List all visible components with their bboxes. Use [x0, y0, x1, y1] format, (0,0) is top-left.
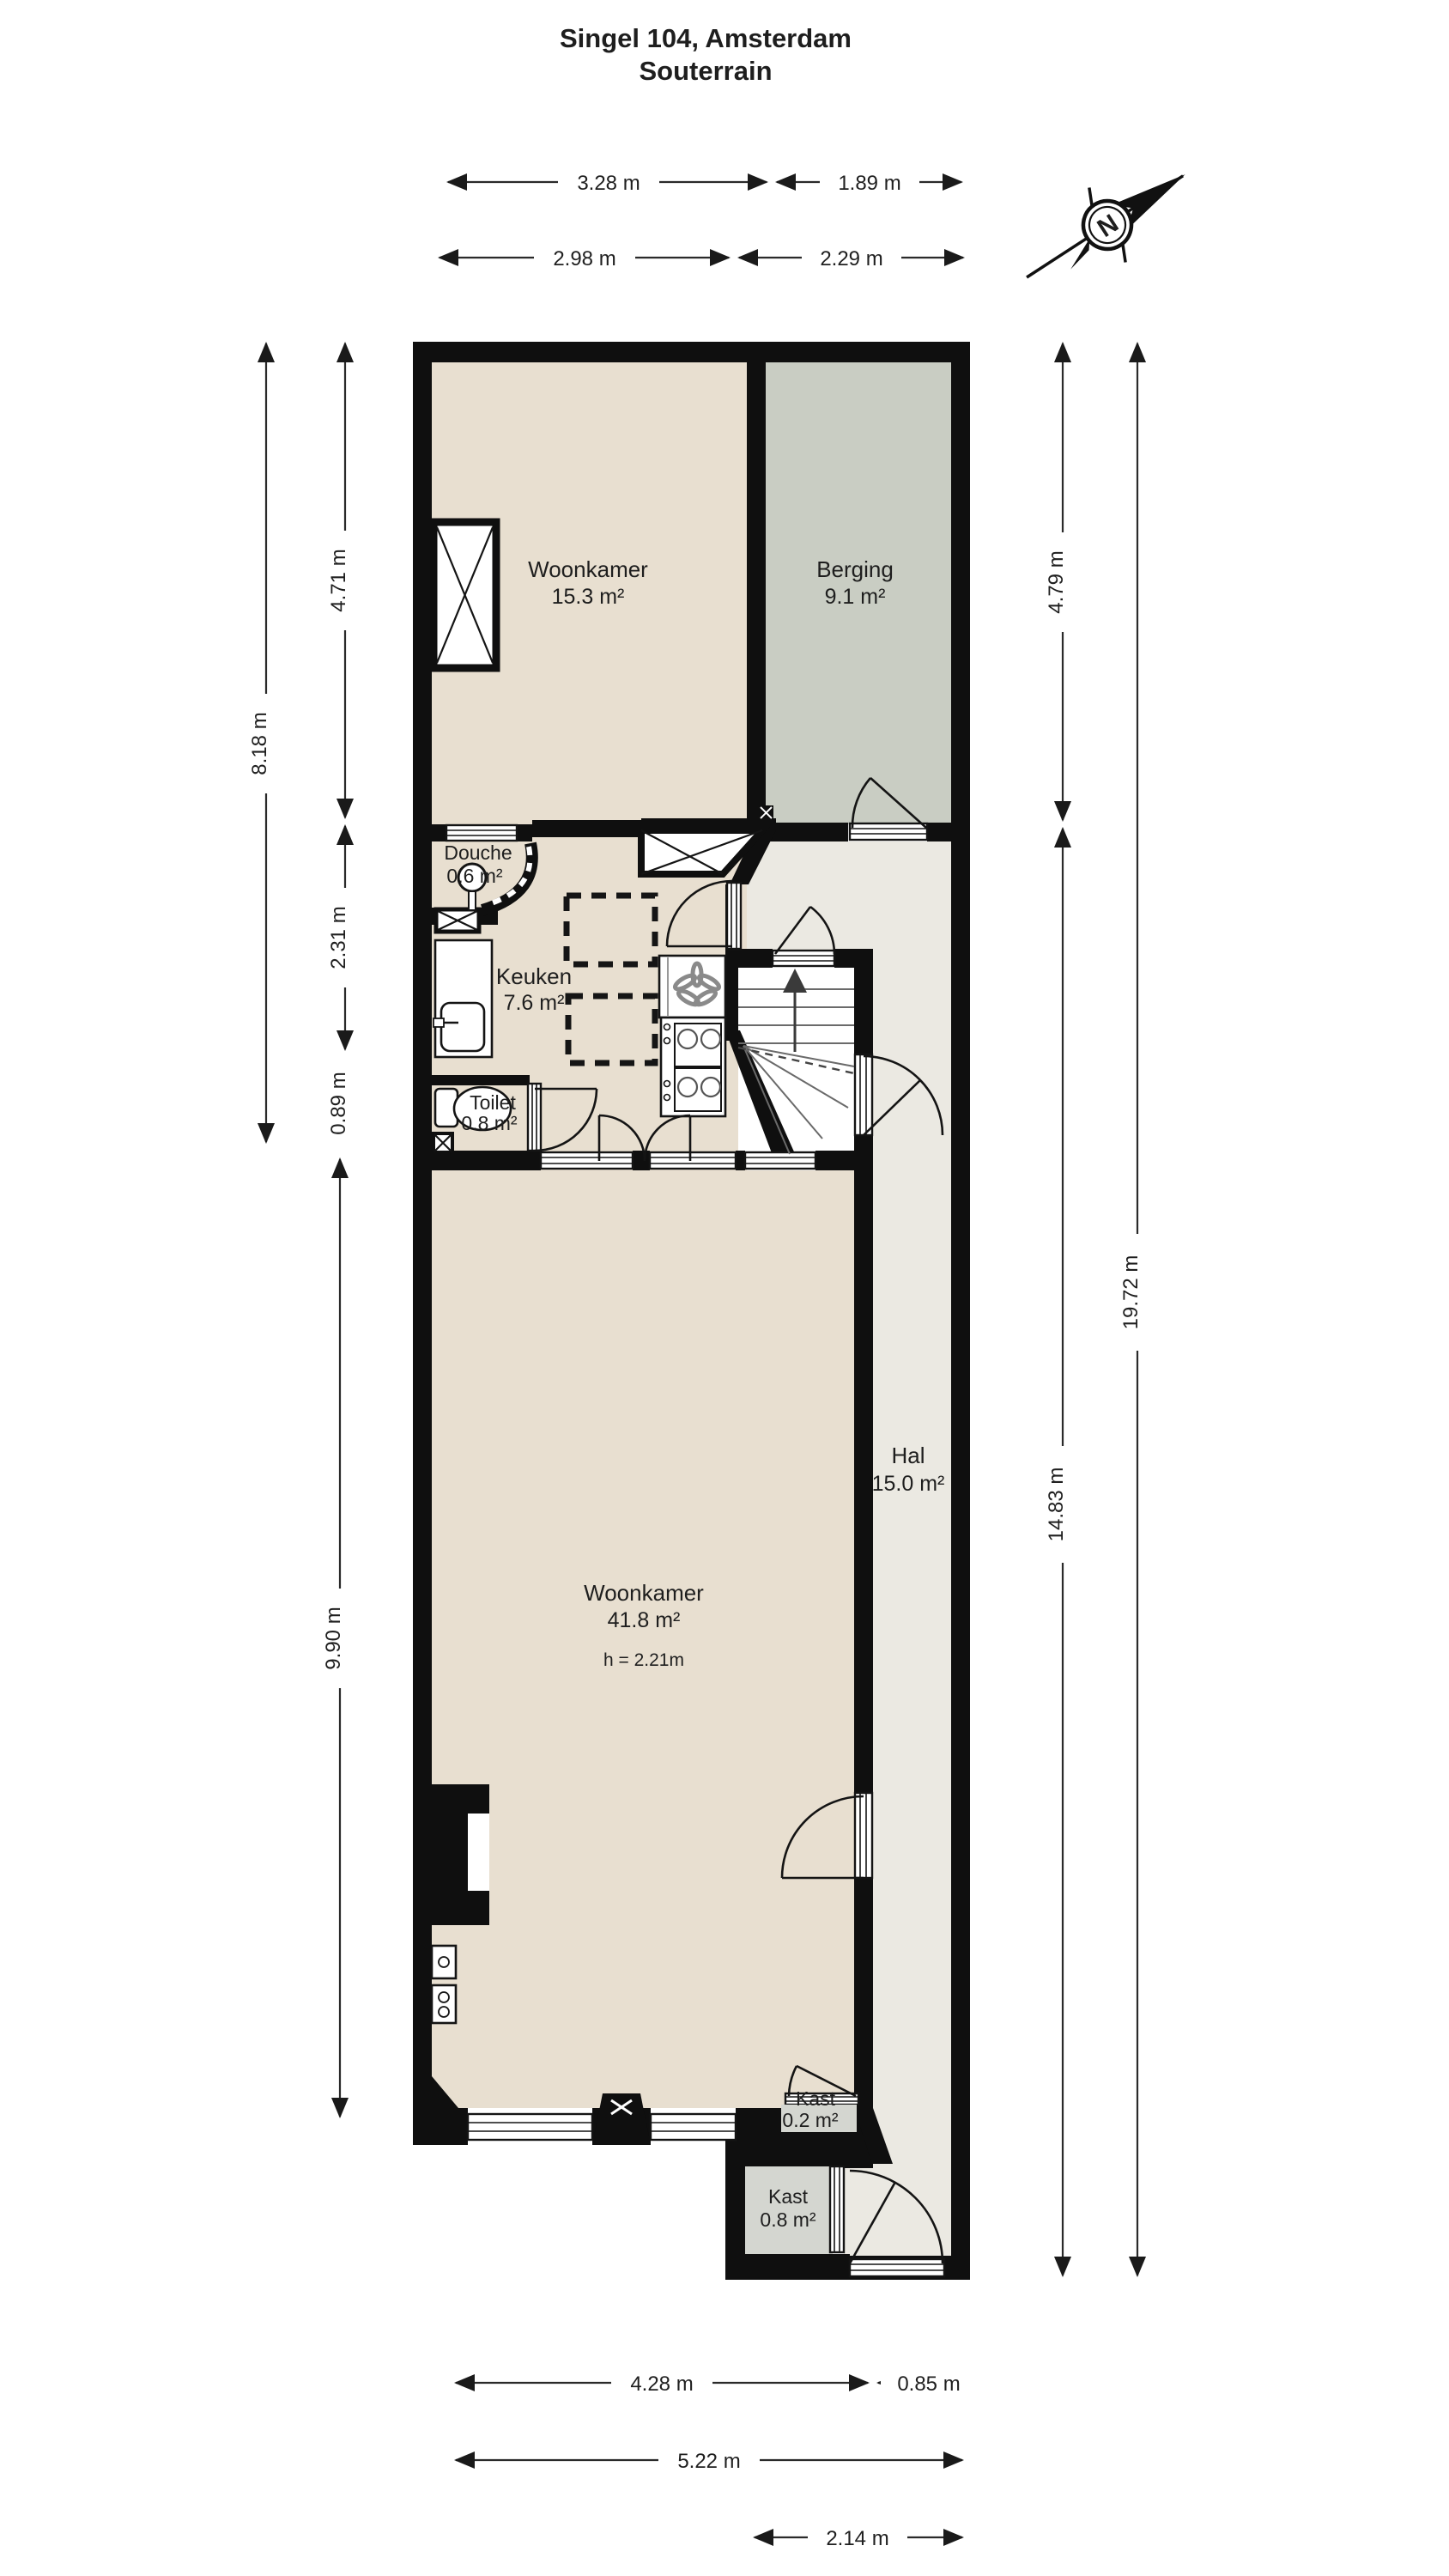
dim-top-1b: 1.89 m [838, 172, 900, 195]
label-berging-area: 9.1 m² [825, 585, 886, 609]
dim-left-089: 0.89 m [327, 1072, 350, 1134]
divider-window-2 [745, 1152, 815, 1169]
berging-door-frame [850, 823, 927, 840]
stove-icon [661, 1018, 725, 1116]
wall-kast-block [725, 2127, 873, 2168]
room-fill-woonkamer-back [432, 1170, 854, 2108]
compass-icon: N [1004, 140, 1208, 312]
label-kast-small-name: Kast [796, 2087, 836, 2110]
room-fill-hal-corridor [873, 955, 951, 2108]
shaft-window-icon [433, 522, 496, 668]
wall-berging-bottom-right [927, 823, 951, 841]
wall-bottom-1 [432, 2108, 468, 2145]
toilet-window-icon [433, 1133, 452, 1152]
label-woonkamer-back-area: 41.8 m² [608, 1608, 681, 1632]
dim-top-2a: 2.98 m [553, 247, 615, 270]
label-hal-name: Hal [891, 1443, 925, 1468]
extractor-fan-icon [659, 956, 725, 1018]
wall-meter-icons [432, 1946, 456, 2023]
wall-left [413, 342, 432, 2145]
divider-french-door-frame [541, 1152, 633, 1169]
label-kast-small-area: 0.2 m² [782, 2109, 839, 2131]
bottom-window-2 [651, 2114, 736, 2140]
dim-bottom-3: 2.14 m [826, 2527, 888, 2550]
wall-divider-4 [815, 1151, 873, 1170]
title-line-2: Souterrain [639, 56, 772, 86]
stairs-door-frame [773, 951, 834, 966]
label-keuken-name: Keuken [496, 963, 572, 989]
dim-bottom-1a: 4.28 m [630, 2372, 693, 2396]
label-woonkamer-front-name: Woonkamer [528, 556, 648, 582]
wall-corridor-left-2 [854, 1135, 873, 1793]
dim-top-1a: 3.28 m [577, 172, 640, 195]
douche-window [446, 825, 517, 841]
wall-corridor-left-1 [854, 968, 873, 1054]
room-fills [432, 361, 951, 2258]
label-toilet-area: 0.8 m² [461, 1112, 518, 1134]
wall-woonkamer-keuken [532, 820, 641, 837]
keuken-door-frame [727, 883, 741, 949]
shower-stem-icon [469, 891, 476, 910]
wall-right [951, 342, 970, 2280]
dim-right-1483: 14.83 m [1045, 1467, 1068, 1542]
label-douche-name: Douche [444, 841, 512, 864]
label-kast-large-area: 0.8 m² [760, 2208, 816, 2231]
dim-bottom-2: 5.22 m [677, 2450, 740, 2473]
dim-left-818: 8.18 m [248, 712, 271, 775]
wall-divider-3 [736, 1151, 745, 1170]
woonkamer-hal-door-frame [855, 1793, 872, 1878]
label-keuken-area: 7.6 m² [504, 991, 565, 1015]
label-douche-area: 0.6 m² [446, 865, 503, 887]
wall-divider-2 [633, 1151, 650, 1170]
dim-left-231: 2.31 m [327, 906, 350, 969]
wall-berging-divider [747, 361, 766, 824]
label-woonkamer-back-height: h = 2.21m [603, 1650, 684, 1670]
bottom-window-1 [468, 2114, 592, 2140]
plan-title: Singel 104, Amsterdam Souterrain [560, 23, 852, 86]
dim-left-471: 4.71 m [327, 549, 350, 611]
label-woonkamer-back-name: Woonkamer [584, 1580, 704, 1606]
floorplan-drawing: Singel 104, Amsterdam Souterrain [0, 0, 1449, 2576]
label-toilet-name: Toilet [470, 1091, 516, 1114]
wall-toilet-top [432, 1075, 530, 1085]
dim-right-479: 4.79 m [1045, 550, 1068, 613]
wall-stairs-top-right [834, 949, 873, 968]
douche-sill-window-icon [436, 909, 479, 932]
floorplan-page: Singel 104, Amsterdam Souterrain [0, 0, 1449, 2576]
label-kast-large-name: Kast [768, 2185, 809, 2208]
wall-top [413, 342, 970, 362]
label-hal-area: 15.0 m² [872, 1472, 945, 1496]
kitchen-counter [433, 940, 492, 1057]
kast-large-door-frame [830, 2166, 844, 2252]
wall-stairs-top-left [725, 949, 773, 968]
chimney-recess [468, 1814, 489, 1891]
entrance-door-frame [850, 2259, 944, 2276]
label-berging-name: Berging [816, 556, 894, 582]
bottom-vent-icon [592, 2093, 651, 2145]
title-line-1: Singel 104, Amsterdam [560, 23, 852, 53]
hal-door-frame [855, 1054, 872, 1135]
dim-left-990: 9.90 m [322, 1607, 345, 1669]
wall-stairs-left [725, 968, 738, 1041]
dim-bottom-1b: 0.85 m [897, 2372, 960, 2396]
dim-right-1972: 19.72 m [1119, 1255, 1143, 1330]
wall-protrusion-bottom [725, 2254, 850, 2280]
dim-top-2b: 2.29 m [820, 247, 882, 270]
label-woonkamer-front-area: 15.3 m² [552, 585, 625, 609]
toilet-door-frame [528, 1084, 541, 1151]
divider-window-1 [650, 1152, 736, 1169]
tap-icon [433, 1018, 444, 1027]
sink-icon [441, 1003, 484, 1051]
room-fill-hal-landing [747, 841, 951, 955]
wall-corridor-left-3 [854, 1878, 873, 2108]
